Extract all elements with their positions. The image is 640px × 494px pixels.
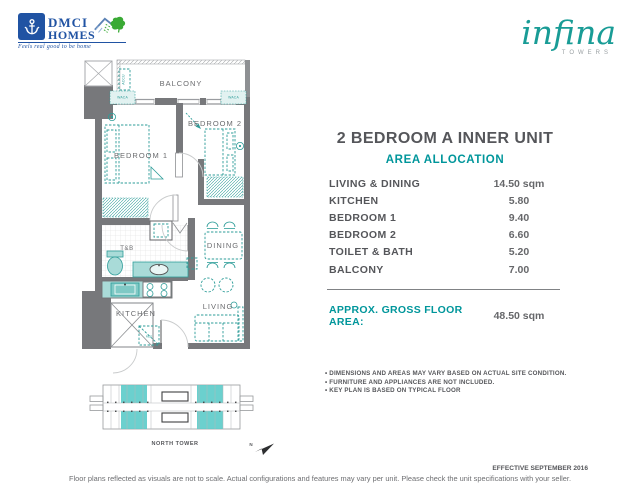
note-item: KEY PLAN IS BASED ON TYPICAL FLOOR [325, 387, 625, 396]
floor-plan: ACCU WACA WACA [55, 55, 270, 375]
north-letter: N [249, 442, 252, 447]
table-row: KITCHEN 5.80 [329, 192, 565, 209]
effective-date: EFFECTIVE SEPTEMBER 2016 [492, 465, 588, 472]
elevator-shaft [85, 61, 112, 86]
table-row: TOILET & BATH 5.20 [329, 244, 565, 261]
gross-area-value: 48.50 sqm [473, 310, 565, 322]
infina-towers-logo: infina TOWERS [521, 16, 616, 56]
house-tree-icon [93, 13, 126, 41]
note-item: FURNITURE AND APPLIANCES ARE NOT INCLUDE… [325, 379, 625, 388]
gross-floor-area-row: APPROX. GROSS FLOOR AREA: 48.50 sqm [329, 304, 565, 328]
area-value: 5.20 [473, 246, 565, 258]
kitchen-label: KITCHEN [116, 309, 156, 318]
area-label: BEDROOM 1 [329, 212, 473, 224]
floor-plan-page: DMCI HOMES Feels real good to be home in… [0, 0, 640, 494]
waca-right-label: WACA [228, 96, 239, 100]
dmci-anchor-icon [18, 13, 45, 40]
area-allocation-heading: AREA ALLOCATION [325, 154, 565, 166]
bedroom2-label: BEDROOM 2 [188, 119, 242, 128]
area-value: 5.80 [473, 195, 565, 207]
accu-label: ACCU [122, 74, 126, 85]
north-arrow-icon: N [249, 442, 274, 455]
ref-label: REF [146, 335, 153, 339]
area-label: BEDROOM 2 [329, 229, 473, 241]
table-row: LIVING & DINING 14.50 sqm [329, 175, 565, 192]
bedroom1-door [150, 195, 178, 221]
homes-wordmark: HOMES [48, 29, 95, 41]
bedroom1-label: BEDROOM 1 [114, 151, 168, 160]
toilet-bath [102, 221, 188, 277]
area-label: TOILET & BATH [329, 246, 473, 258]
table-row: BEDROOM 2 6.60 [329, 227, 565, 244]
divider [327, 289, 560, 290]
table-row: BALCONY 7.00 [329, 261, 565, 278]
area-value: 7.00 [473, 264, 565, 276]
area-table: LIVING & DINING 14.50 sqm KITCHEN 5.80 B… [329, 175, 565, 278]
gross-area-label: APPROX. GROSS FLOOR AREA: [329, 304, 473, 328]
area-label: BALCONY [329, 264, 473, 276]
table-row: BEDROOM 1 9.40 [329, 209, 565, 226]
area-label: LIVING & DINING [329, 178, 473, 190]
north-tower-label: NORTH TOWER [152, 441, 199, 447]
footer-disclaimer: Floor plans reflected as visuals are not… [0, 474, 640, 483]
washing-area-left: WACA [110, 91, 135, 104]
washing-area-right: WACA [221, 91, 246, 104]
living-label: LIVING [203, 302, 234, 311]
dmci-tagline: Feels real good to be home [18, 42, 126, 50]
area-value: 6.60 [473, 229, 565, 241]
infina-wordmark: infina [521, 16, 616, 49]
area-value: 9.40 [473, 212, 565, 224]
dining-label: DINING [207, 241, 239, 250]
key-plan-building [90, 385, 253, 429]
area-value: 14.50 sqm [473, 178, 565, 190]
waca-left-label: WACA [117, 96, 128, 100]
key-plan: NORTH TOWER N [85, 375, 285, 455]
dmci-homes-logo: DMCI HOMES Feels real good to be home [18, 13, 126, 50]
accu-closet: ACCU [119, 69, 130, 90]
bedroom1-furniture [103, 113, 163, 217]
balcony-label: BALCONY [160, 79, 203, 88]
tb-label: T&B [120, 246, 133, 252]
area-label: KITCHEN [329, 195, 473, 207]
notes-list: DIMENSIONS AND AREAS MAY VARY BASED ON A… [325, 370, 625, 396]
note-item: DIMENSIONS AND AREAS MAY VARY BASED ON A… [325, 370, 625, 379]
entry-door [161, 320, 188, 347]
unit-title: 2 BEDROOM A INNER UNIT [325, 130, 565, 148]
